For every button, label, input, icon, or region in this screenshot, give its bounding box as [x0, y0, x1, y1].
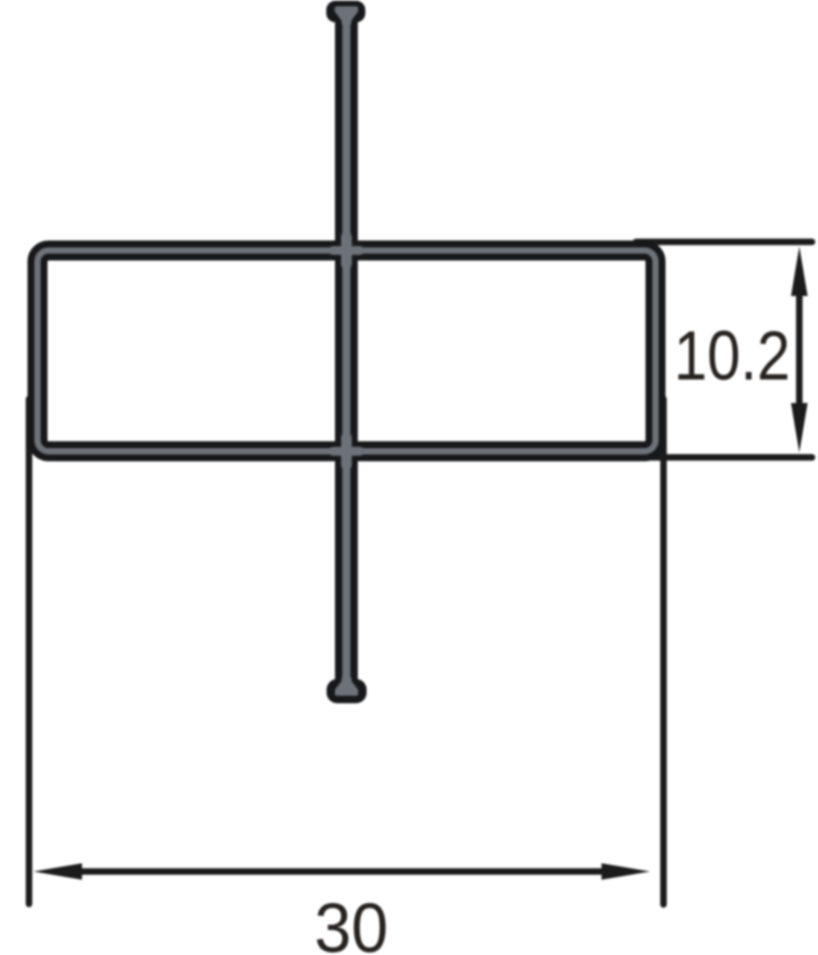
svg-text:10.2: 10.2: [674, 316, 791, 394]
svg-text:30: 30: [314, 889, 388, 955]
